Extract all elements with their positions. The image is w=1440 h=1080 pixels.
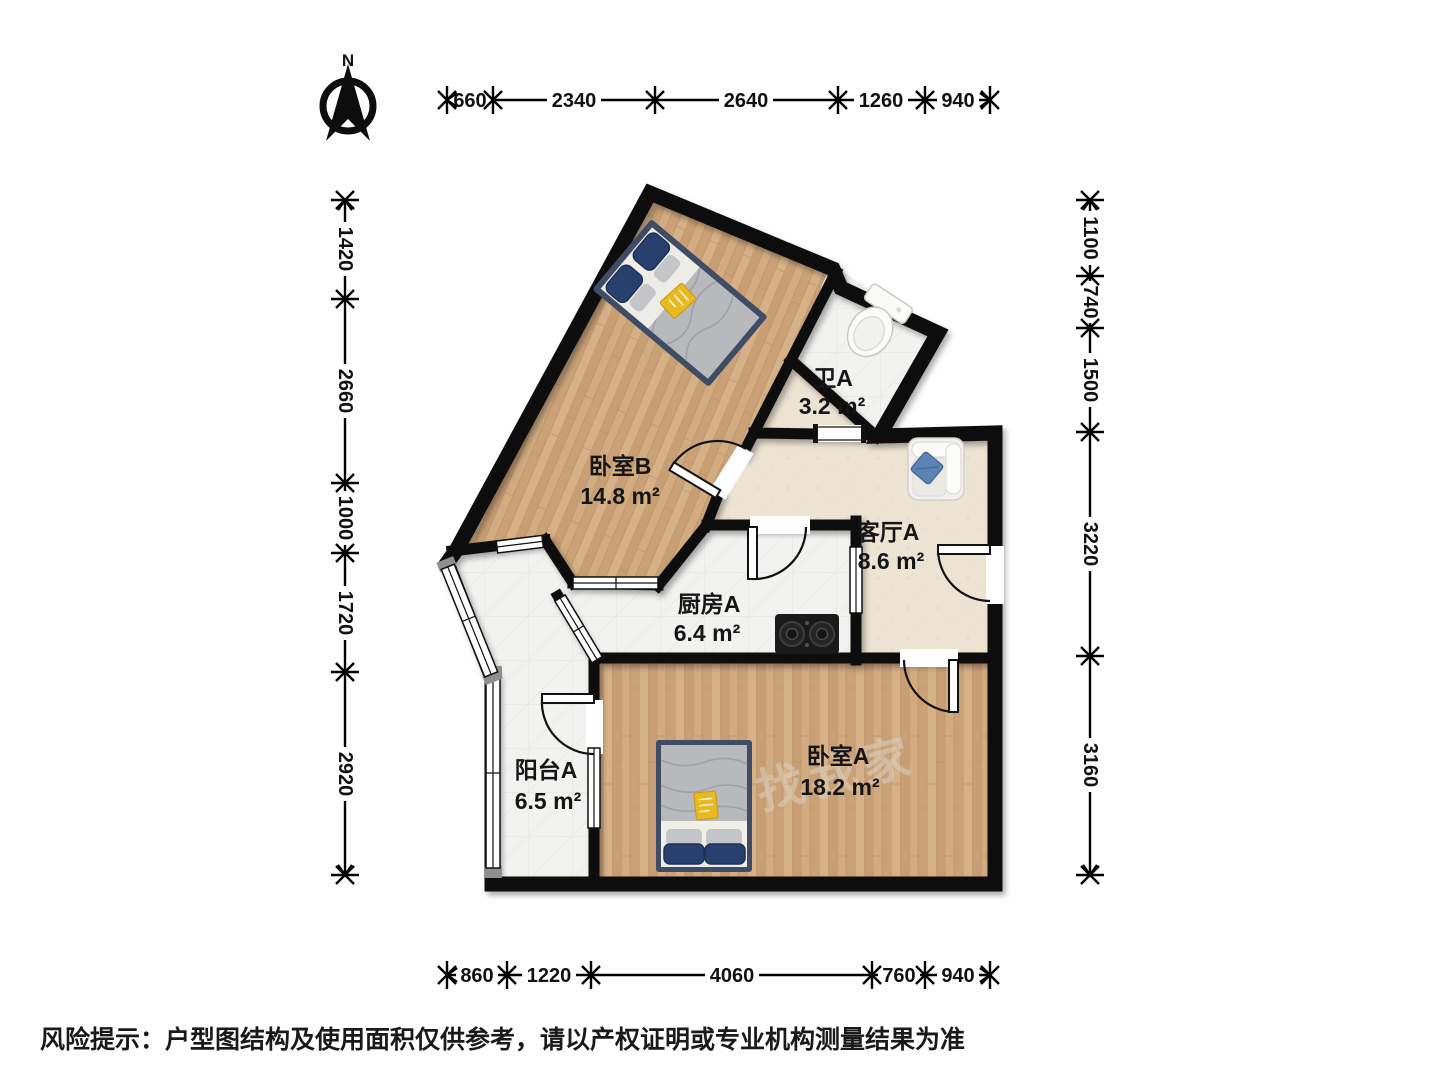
dim-top-2: 2340	[552, 90, 597, 112]
kitchen-area: 6.4 m²	[674, 620, 741, 646]
balcony-door-opening	[586, 700, 603, 754]
dim-right-1: 1100	[1079, 216, 1101, 259]
dim-right-4: 3220	[1079, 522, 1101, 567]
balcony-label: 阳台A	[515, 757, 578, 783]
floorplan-page: 找我家 卧室B 14.8 m² 卫A 3.2 m² 客厅A 8.6 m² 厨房A…	[0, 0, 1440, 1080]
dim-right-3: 1500	[1079, 358, 1101, 403]
dim-top-1: 660	[453, 90, 486, 112]
dim-bottom-2: 1220	[527, 965, 572, 987]
sofa-icon	[908, 438, 964, 500]
dim-top-3: 2640	[724, 90, 769, 112]
dim-bottom-3: 4060	[710, 965, 755, 987]
bedroom-a-area: 18.2 m²	[800, 774, 880, 800]
bedroom-b-label: 卧室B	[589, 453, 652, 479]
dim-left-2: 2660	[334, 369, 356, 414]
bathroom-label: 卫A	[813, 365, 853, 391]
north-indicator: N	[323, 51, 373, 141]
bathroom-area: 3.2 m²	[799, 393, 866, 419]
disclaimer-text: 风险提示：户型图结构及使用面积仅供参考，请以产权证明或专业机构测量结果为准	[40, 1025, 965, 1054]
dim-bottom-4: 760	[882, 965, 915, 987]
bedroom-a-label: 卧室A	[807, 743, 870, 769]
dim-right-5: 3160	[1079, 743, 1101, 788]
kitchen-label: 厨房A	[678, 591, 741, 617]
bed-a-icon	[656, 740, 752, 872]
balcony-window-left	[486, 678, 500, 868]
dim-bottom-1: 860	[460, 965, 493, 987]
dim-left-4: 1720	[334, 591, 356, 636]
dim-left-1: 1420	[334, 227, 356, 272]
dimension-top	[438, 86, 999, 114]
living-area: 8.6 m²	[858, 548, 925, 574]
floorplan-svg: 找我家 卧室B 14.8 m² 卫A 3.2 m² 客厅A 8.6 m² 厨房A…	[0, 0, 1440, 1080]
dim-left-5: 2920	[334, 752, 356, 797]
balcony-bedroom-a-window	[588, 748, 600, 828]
bedroom-b-area: 14.8 m²	[580, 483, 660, 509]
kitchen-door-opening	[750, 516, 810, 534]
dim-top-5: 940	[941, 90, 974, 112]
dim-right-2: 740	[1079, 285, 1101, 318]
bedroom-b-kitchen-window	[573, 577, 658, 589]
dim-top-4: 1260	[859, 90, 904, 112]
balcony-area: 6.5 m²	[515, 788, 582, 814]
living-label: 客厅A	[857, 519, 920, 545]
stove-icon	[775, 614, 839, 654]
dim-left-3: 1000	[334, 496, 356, 541]
dim-bottom-5: 940	[941, 965, 974, 987]
